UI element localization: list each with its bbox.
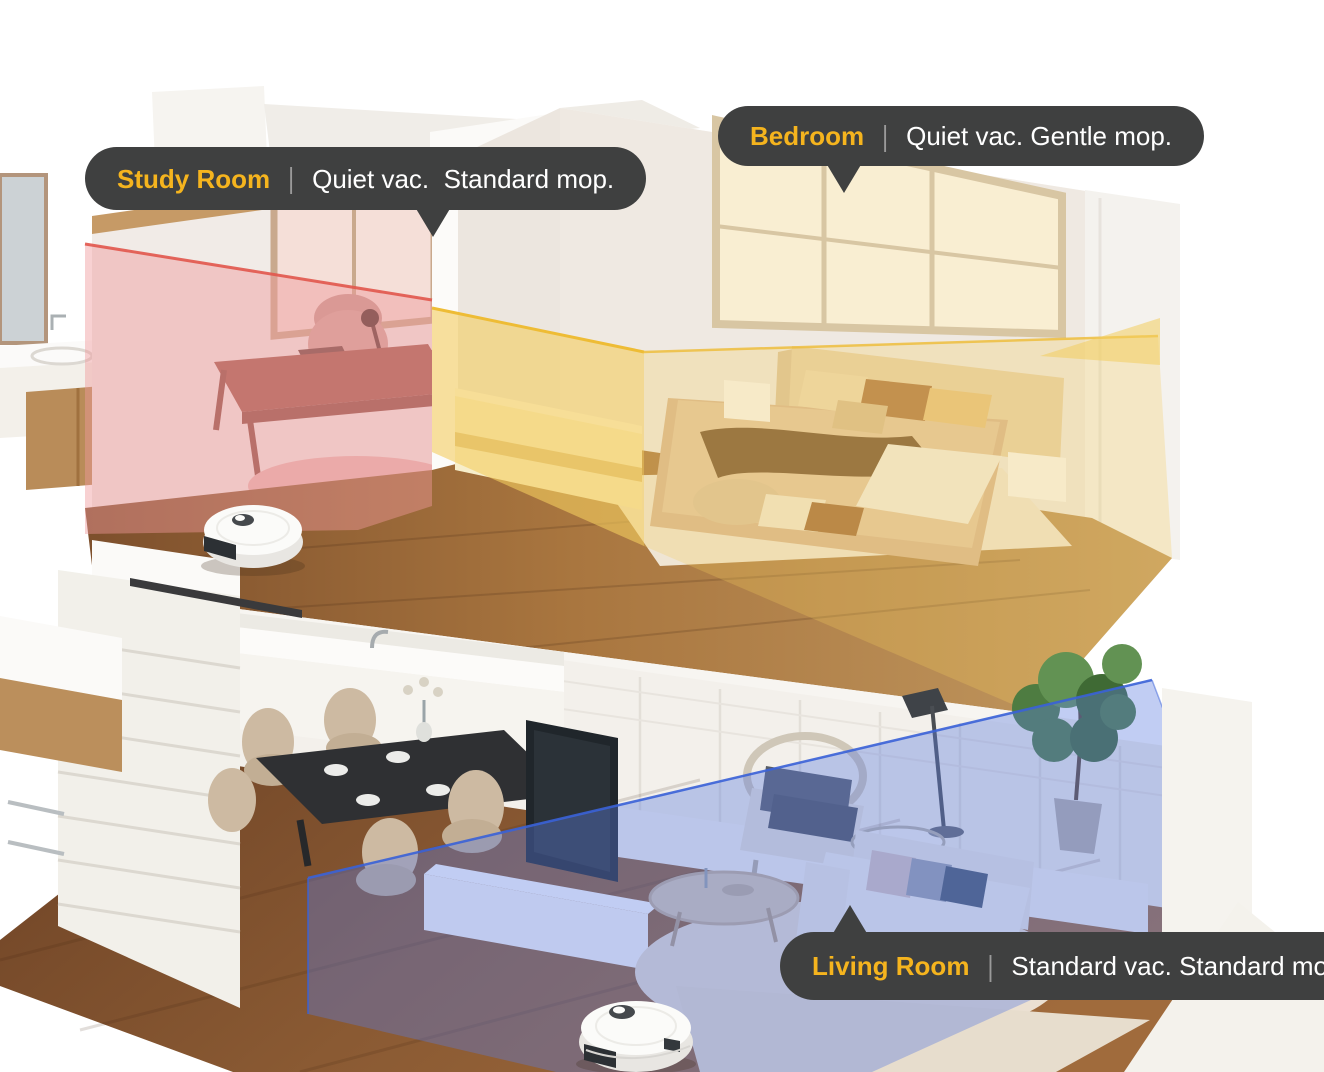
room-name: Study Room [117, 166, 270, 192]
room-name: Bedroom [750, 123, 864, 149]
callout-study-room: Study Room | Quiet vac. Standard mop. [85, 147, 646, 210]
callout-divider: | [882, 122, 888, 151]
robot-vacuum-first-floor [576, 1001, 696, 1072]
callout-living-room: Living Room | Standard vac. Standard mop… [780, 932, 1324, 1000]
callout-bedroom: Bedroom | Quiet vac. Gentle mop. [718, 106, 1204, 166]
cleaning-settings: Quiet vac. Standard mop. [312, 166, 614, 192]
vase [416, 722, 432, 742]
callout-divider: | [987, 952, 993, 981]
cleaning-settings: Quiet vac. Gentle mop. [906, 123, 1172, 149]
robot-vacuum-second-floor [201, 505, 305, 576]
cleaning-settings: Standard vac. Standard mop. [1011, 953, 1324, 979]
room-name: Living Room [812, 953, 969, 979]
callout-divider: | [288, 164, 294, 193]
hero-cutaway-image: Study Room | Quiet vac. Standard mop. Be… [0, 0, 1324, 1072]
